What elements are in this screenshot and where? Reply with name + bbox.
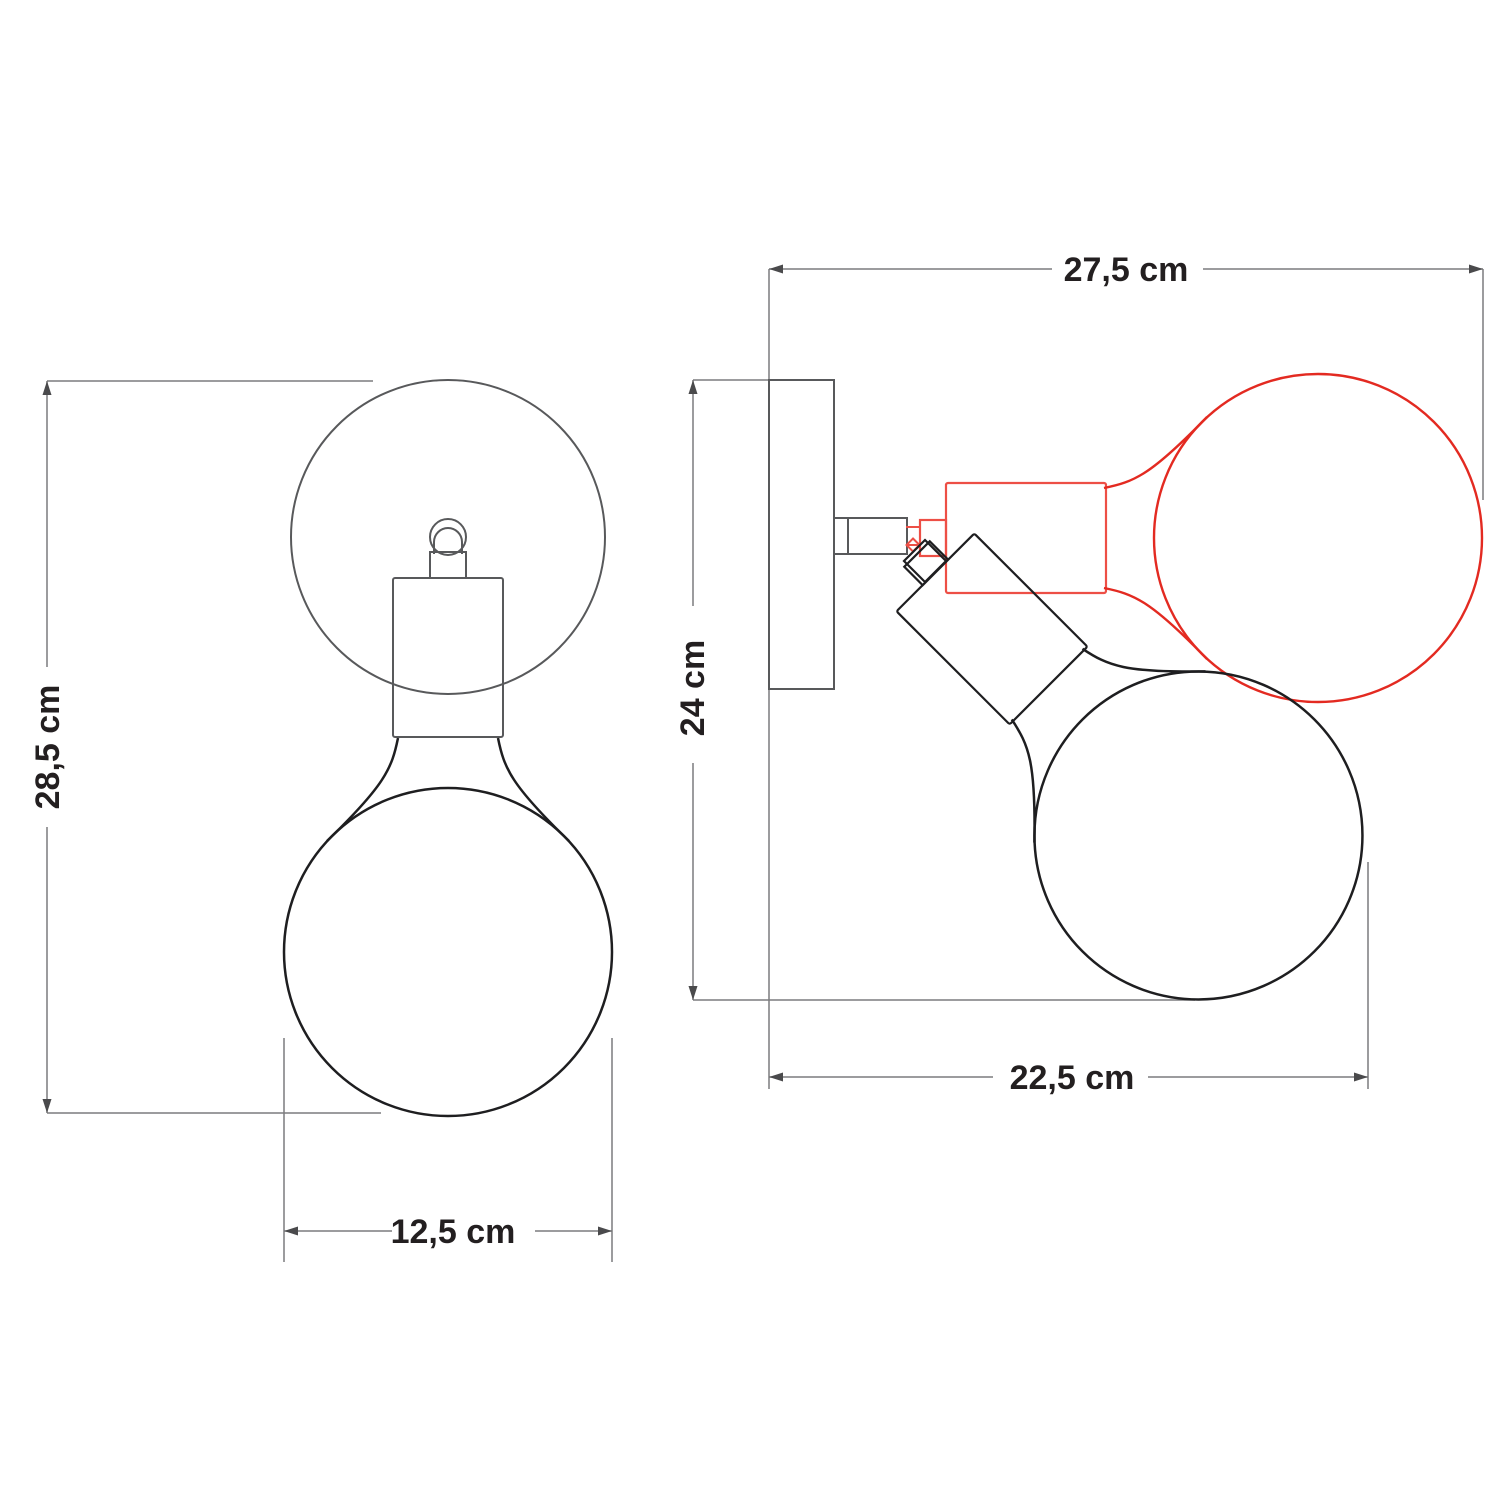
label-front-width: 12,5 cm bbox=[391, 1213, 516, 1251]
wall-plate-front bbox=[291, 380, 605, 694]
dim-arrow bbox=[1354, 1073, 1368, 1082]
dimension-side-width-bottom bbox=[769, 862, 1368, 1089]
dimension-front-height bbox=[47, 381, 381, 1113]
dim-arrow bbox=[689, 986, 698, 1000]
label-side-width-top: 27,5 cm bbox=[1064, 251, 1189, 289]
bulb-red bbox=[1104, 374, 1482, 702]
lamp-position-alt-red bbox=[906, 374, 1482, 702]
dimension-arrows bbox=[43, 265, 1484, 1236]
wall-plate-side bbox=[769, 380, 834, 689]
hinge-hook bbox=[430, 519, 466, 555]
lamp-position-tilted-black bbox=[801, 438, 1430, 1067]
label-side-height: 24 cm bbox=[674, 640, 712, 736]
dim-arrow bbox=[689, 380, 698, 394]
dim-arrow bbox=[1469, 265, 1483, 274]
label-side-width-bottom: 22,5 cm bbox=[1010, 1059, 1135, 1097]
socket-cap-red bbox=[920, 520, 946, 556]
mounting-arm bbox=[834, 518, 907, 554]
label-front-height: 28,5 cm bbox=[29, 685, 67, 810]
bulb-front bbox=[284, 738, 612, 1116]
front-view bbox=[284, 380, 612, 1116]
dimension-lines bbox=[47, 269, 1483, 1262]
dimension-labels: 28,5 cm 12,5 cm 27,5 cm 24 cm 22,5 cm bbox=[29, 251, 1188, 1251]
dim-arrow bbox=[284, 1227, 298, 1236]
lamp-dimension-drawing: 28,5 cm 12,5 cm 27,5 cm 24 cm 22,5 cm bbox=[0, 0, 1500, 1500]
socket-body-tilted bbox=[897, 534, 1088, 725]
dim-arrow bbox=[43, 381, 52, 395]
dimension-side-width-top bbox=[769, 269, 1483, 1089]
socket-body-front bbox=[393, 578, 503, 737]
socket-cap-tilted bbox=[904, 541, 948, 585]
bulb-tilted bbox=[931, 568, 1430, 1067]
dim-arrow bbox=[43, 1099, 52, 1113]
dim-arrow bbox=[769, 1073, 783, 1082]
dim-arrow bbox=[598, 1227, 612, 1236]
dim-arrow bbox=[769, 265, 783, 274]
side-view bbox=[769, 374, 1482, 1067]
drawing-canvas: 28,5 cm 12,5 cm 27,5 cm 24 cm 22,5 cm bbox=[0, 0, 1500, 1500]
